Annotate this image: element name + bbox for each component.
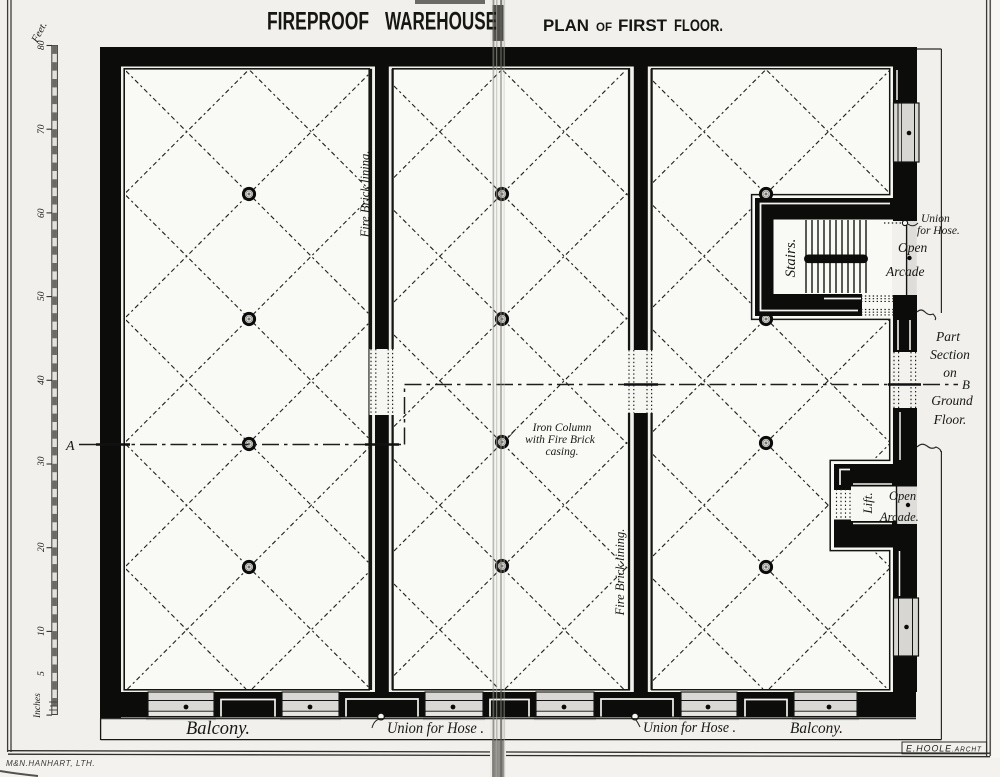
svg-text:30: 30 (37, 456, 47, 467)
svg-text:Lift.: Lift. (860, 492, 875, 514)
svg-text:5: 5 (37, 671, 47, 676)
svg-text:50: 50 (37, 291, 47, 301)
svg-text:70: 70 (37, 124, 47, 134)
svg-text:FIREPROOF: FIREPROOF (267, 8, 369, 36)
svg-text:Fire Brick lining.: Fire Brick lining. (613, 529, 627, 617)
svg-text:with Fire Brick: with Fire Brick (525, 434, 596, 446)
svg-text:Balcony.: Balcony. (790, 720, 843, 737)
svg-text:Balcony.: Balcony. (186, 718, 250, 739)
svg-text:PLAN: PLAN (543, 17, 589, 35)
svg-text:Arcade: Arcade (885, 264, 924, 279)
svg-text:for Hose.: for Hose. (917, 225, 960, 237)
svg-text:WAREHOUSE: WAREHOUSE (385, 8, 497, 36)
svg-text:Inches: Inches (33, 693, 43, 719)
svg-text:on: on (943, 365, 957, 380)
svg-text:Section: Section (930, 347, 970, 362)
svg-text:FLOOR.: FLOOR. (674, 17, 723, 35)
svg-text:80: 80 (37, 40, 47, 50)
svg-text:20: 20 (37, 542, 47, 552)
svg-text:OF: OF (596, 20, 612, 34)
svg-text:Part: Part (935, 329, 961, 344)
svg-text:40: 40 (37, 375, 47, 385)
svg-text:Ground: Ground (931, 393, 973, 408)
svg-text:10: 10 (37, 626, 47, 636)
svg-text:FIRST: FIRST (618, 17, 667, 35)
svg-text:Union for Hose .: Union for Hose . (387, 720, 484, 737)
svg-text:Union: Union (921, 213, 950, 225)
svg-text:Open: Open (889, 489, 916, 503)
svg-text:Arcade.: Arcade. (879, 510, 919, 524)
svg-text:Open: Open (898, 240, 927, 255)
svg-text:60: 60 (37, 208, 47, 218)
svg-text:Stairs.: Stairs. (783, 239, 799, 278)
svg-text:A: A (65, 439, 75, 454)
svg-text:casing.: casing. (546, 446, 579, 458)
svg-text:M&N.HANHART, LTH.: M&N.HANHART, LTH. (6, 759, 95, 768)
svg-text:Union for Hose .: Union for Hose . (643, 720, 736, 736)
svg-text:Fire Brick lining.: Fire Brick lining. (358, 151, 372, 239)
svg-text:Iron Column: Iron Column (532, 422, 592, 434)
svg-text:B: B (962, 377, 970, 392)
svg-text:Floor.: Floor. (933, 412, 967, 427)
